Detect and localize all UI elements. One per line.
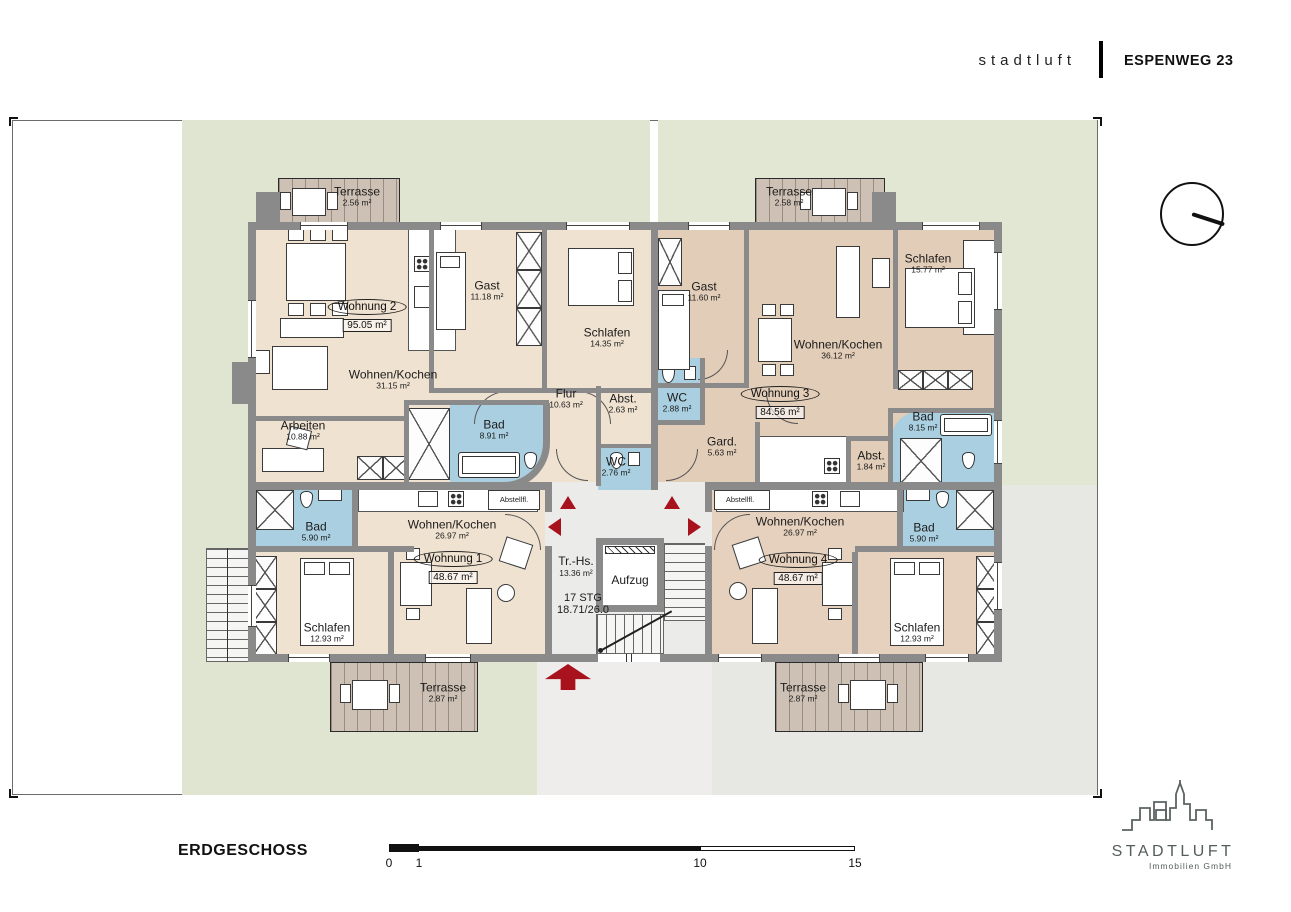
wall <box>651 222 658 490</box>
wall-stairwell <box>545 482 552 662</box>
chair <box>288 303 304 316</box>
badge-wohnung3: Wohnung 3 84.56 m² <box>741 384 820 420</box>
room-label-w3-schlafen: Schlafen15.77 m² <box>905 253 952 276</box>
site-corner-mark <box>9 117 18 126</box>
shower <box>900 438 942 484</box>
room-label-w3-abst: Abst.1.84 m² <box>857 450 886 473</box>
badge-wohnung4: Wohnung 4 48.67 m² <box>759 550 838 586</box>
wardrobe <box>516 232 542 270</box>
wall <box>855 546 1002 552</box>
door-opening <box>662 483 694 490</box>
wardrobe <box>253 622 277 655</box>
terrace-pillar <box>872 192 896 222</box>
room-label-w3-bad: Bad8.15 m² <box>909 411 938 434</box>
dining-table <box>758 318 792 362</box>
stair-steps-label: 17 STG 18.71/26.0 <box>557 592 609 616</box>
room-label-w3-gard: Gard.5.63 m² <box>707 436 737 459</box>
chair <box>310 303 326 316</box>
room-label-terrasse-bl: Terrasse2.87 m² <box>420 682 466 705</box>
room-label-w4-schlafen: Schlafen12.93 m² <box>894 622 941 645</box>
window <box>288 654 330 662</box>
shower <box>256 490 294 530</box>
wall <box>846 436 851 484</box>
wall <box>893 229 898 389</box>
wall <box>744 229 749 387</box>
pillow <box>329 562 350 575</box>
side-table <box>872 258 890 288</box>
pillow <box>618 280 632 302</box>
window <box>300 222 348 230</box>
stair-walkline <box>227 548 228 662</box>
terrace-chair <box>847 192 858 210</box>
room-label-w2-schlafen: Schlafen14.35 m² <box>584 327 631 350</box>
window <box>425 654 471 662</box>
pillow <box>894 562 915 575</box>
chair <box>780 364 794 376</box>
room-label-terrasse-tl: Terrasse2.56 m² <box>334 186 380 209</box>
chair <box>406 608 420 620</box>
scale-bar-segment <box>700 846 855 851</box>
window <box>925 654 969 662</box>
exterior-stair <box>206 548 250 662</box>
room-label-w3-wohnen: Wohnen/Kochen36.12 m² <box>794 339 883 362</box>
room-label-w1-wohnen: Wohnen/Kochen26.97 m² <box>408 519 497 542</box>
badge-wohnung1: Wohnung 1 48.67 m² <box>414 549 493 585</box>
company-logo: STADTLUFT Immobilien GmbH <box>1108 780 1238 871</box>
project-title: ESPENWEG 23 <box>1124 53 1233 69</box>
scale-tick-1: 1 <box>416 856 423 870</box>
sofa <box>272 346 328 390</box>
brand-wordmark: stadtluft <box>968 52 1076 69</box>
skyline-icon <box>1118 780 1228 836</box>
stove <box>824 458 840 474</box>
room-label-w3-gast: Gast11.60 m² <box>688 281 721 304</box>
elevator-door-hatch <box>605 546 655 554</box>
ottoman <box>497 584 515 602</box>
wardrobe <box>253 556 277 589</box>
terrace-table <box>850 680 886 710</box>
pillow <box>958 301 972 324</box>
room-label-terrasse-tr: Terrasse2.58 m² <box>766 186 812 209</box>
desk <box>262 448 324 472</box>
terrace-pillar <box>256 192 280 222</box>
wardrobe <box>948 370 973 390</box>
wall <box>542 229 547 391</box>
terrace-table <box>812 188 846 216</box>
wall <box>846 436 893 441</box>
stairwell-label: Tr.-Hs. 13.36 m² <box>558 554 594 578</box>
wall <box>404 400 409 485</box>
door-opening <box>556 483 588 490</box>
wardrobe <box>923 370 948 390</box>
scale-bar-segment <box>389 844 419 852</box>
chair <box>762 304 776 316</box>
scale-bar-segment <box>419 846 700 851</box>
wall <box>429 229 434 389</box>
kitchen-sink <box>418 491 438 507</box>
window <box>248 300 256 358</box>
window <box>922 222 980 230</box>
room-label-w2-gast: Gast11.18 m² <box>471 280 504 303</box>
window <box>994 252 1002 310</box>
elevator-label: Aufzug <box>611 571 648 589</box>
terrace-chair <box>838 684 849 703</box>
room-label-w2-bad: Bad8.91 m² <box>480 419 509 442</box>
wall <box>705 482 1002 490</box>
room-label-w4-bad: Bad5.90 m² <box>910 522 939 545</box>
sofa <box>752 588 778 644</box>
wall <box>596 444 654 448</box>
dining-table <box>286 243 346 301</box>
stove <box>414 256 430 272</box>
wall <box>700 358 705 424</box>
window <box>440 222 482 230</box>
wall-stairwell <box>705 482 712 662</box>
terrace-chair <box>887 684 898 703</box>
sofa <box>466 588 492 644</box>
terrace-chair <box>280 192 291 210</box>
room-label-w3-wc: WC2.88 m² <box>663 392 692 415</box>
wall-pilaster <box>232 362 248 404</box>
window <box>718 654 762 662</box>
wall <box>888 408 893 486</box>
stair-cutline-dot <box>598 648 603 653</box>
wall <box>252 416 404 421</box>
terrace-table <box>292 188 326 216</box>
wardrobe <box>516 270 542 308</box>
pillow <box>662 294 684 306</box>
pillow <box>304 562 325 575</box>
pillow <box>618 252 632 274</box>
room-label-w4-wohnen: Wohnen/Kochen26.97 m² <box>756 516 845 539</box>
window <box>838 654 880 662</box>
scale-tick-15: 15 <box>848 856 861 870</box>
sofa <box>836 246 860 318</box>
door-opening <box>705 512 712 546</box>
room-label-w2-arbeiten: Arbeiten10.88 m² <box>281 420 326 443</box>
terrace-chair <box>389 684 400 703</box>
wall <box>888 408 996 413</box>
wardrobe <box>898 370 923 390</box>
chair <box>828 608 842 620</box>
sink <box>906 489 930 501</box>
chair <box>780 304 794 316</box>
wardrobe <box>253 589 277 622</box>
scale-tick-10: 10 <box>693 856 706 870</box>
shower <box>408 408 450 480</box>
wall <box>596 386 601 486</box>
terrace-chair <box>340 684 351 703</box>
logo-subtitle: Immobilien GmbH <box>1108 861 1238 871</box>
room-label-w2-flur: Flur10.63 m² <box>549 388 583 411</box>
pillow <box>958 272 972 295</box>
room-label-w2-abst: Abst.2.63 m² <box>609 393 638 416</box>
wall <box>352 488 358 552</box>
wardrobe <box>357 456 383 480</box>
site-corner-mark <box>9 789 18 798</box>
window <box>688 222 730 230</box>
wall <box>388 552 394 656</box>
header-divider <box>1099 41 1103 78</box>
badge-wohnung2: Wohnung 2 95.05 m² <box>328 297 407 333</box>
scale-tick-0: 0 <box>386 856 393 870</box>
pillow <box>440 256 460 268</box>
wall <box>655 383 749 388</box>
logo-name: STADTLUFT <box>1108 843 1238 861</box>
pillow <box>919 562 940 575</box>
wall <box>852 552 858 656</box>
room-label-w1-schlafen: Schlafen12.93 m² <box>304 622 351 645</box>
ottoman <box>729 582 747 600</box>
room-label-w2-wohnen: Wohnen/Kochen31.15 m² <box>349 369 438 392</box>
shower <box>956 490 994 530</box>
chair <box>762 364 776 376</box>
wall-curved <box>448 403 550 489</box>
wall <box>755 422 760 484</box>
kitchen-sink <box>840 491 860 507</box>
window <box>994 420 1002 464</box>
window <box>248 585 256 627</box>
window <box>994 562 1002 610</box>
kitchen-sink <box>414 286 430 308</box>
wall <box>897 488 903 552</box>
room-label-w1-bad: Bad5.90 m² <box>302 521 331 544</box>
room-label-terrasse-br: Terrasse2.87 m² <box>780 682 826 705</box>
floor-title: ERDGESCHOSS <box>178 842 308 860</box>
bathtub <box>940 414 992 436</box>
room-label-w4-abstellfl: Abstellfl. <box>726 496 754 504</box>
wardrobe <box>516 308 542 346</box>
terrace-table <box>352 680 388 710</box>
room-label-w2-wc: WC2.76 m² <box>602 456 631 479</box>
sink <box>318 489 342 501</box>
stove <box>812 491 828 507</box>
wardrobe <box>658 238 682 286</box>
entrance-door <box>598 654 660 662</box>
window <box>566 222 630 230</box>
wall <box>655 420 705 425</box>
room-label-w1-abstellfl: Abstellfl. <box>500 496 528 504</box>
stove <box>448 491 464 507</box>
